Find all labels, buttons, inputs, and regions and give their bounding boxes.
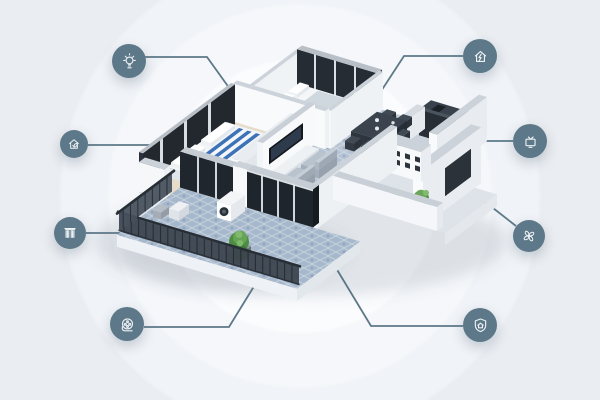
lightbulb-icon bbox=[119, 51, 140, 72]
fan-icon bbox=[519, 226, 539, 246]
hotspot-smart-fan[interactable] bbox=[513, 220, 545, 252]
curtains-icon bbox=[60, 223, 80, 243]
hotspot-home-energy[interactable] bbox=[463, 39, 497, 73]
hotspot-smart-curtains[interactable] bbox=[54, 217, 86, 249]
floorplan-illustration bbox=[0, 0, 600, 400]
house-lightning-icon bbox=[470, 46, 491, 67]
hotspot-home-security[interactable] bbox=[463, 308, 497, 342]
hotspot-eco-home[interactable] bbox=[60, 130, 88, 158]
smart-home-infographic bbox=[0, 0, 600, 400]
shield-home-icon bbox=[470, 315, 491, 336]
robot-vacuum-icon bbox=[117, 314, 138, 335]
hotspot-robot-vacuum[interactable] bbox=[110, 307, 144, 341]
hotspot-smart-tv[interactable] bbox=[513, 124, 547, 158]
hotspot-smart-lighting[interactable] bbox=[112, 44, 146, 78]
tv-icon bbox=[520, 131, 541, 152]
house-leaf-icon bbox=[65, 135, 83, 153]
